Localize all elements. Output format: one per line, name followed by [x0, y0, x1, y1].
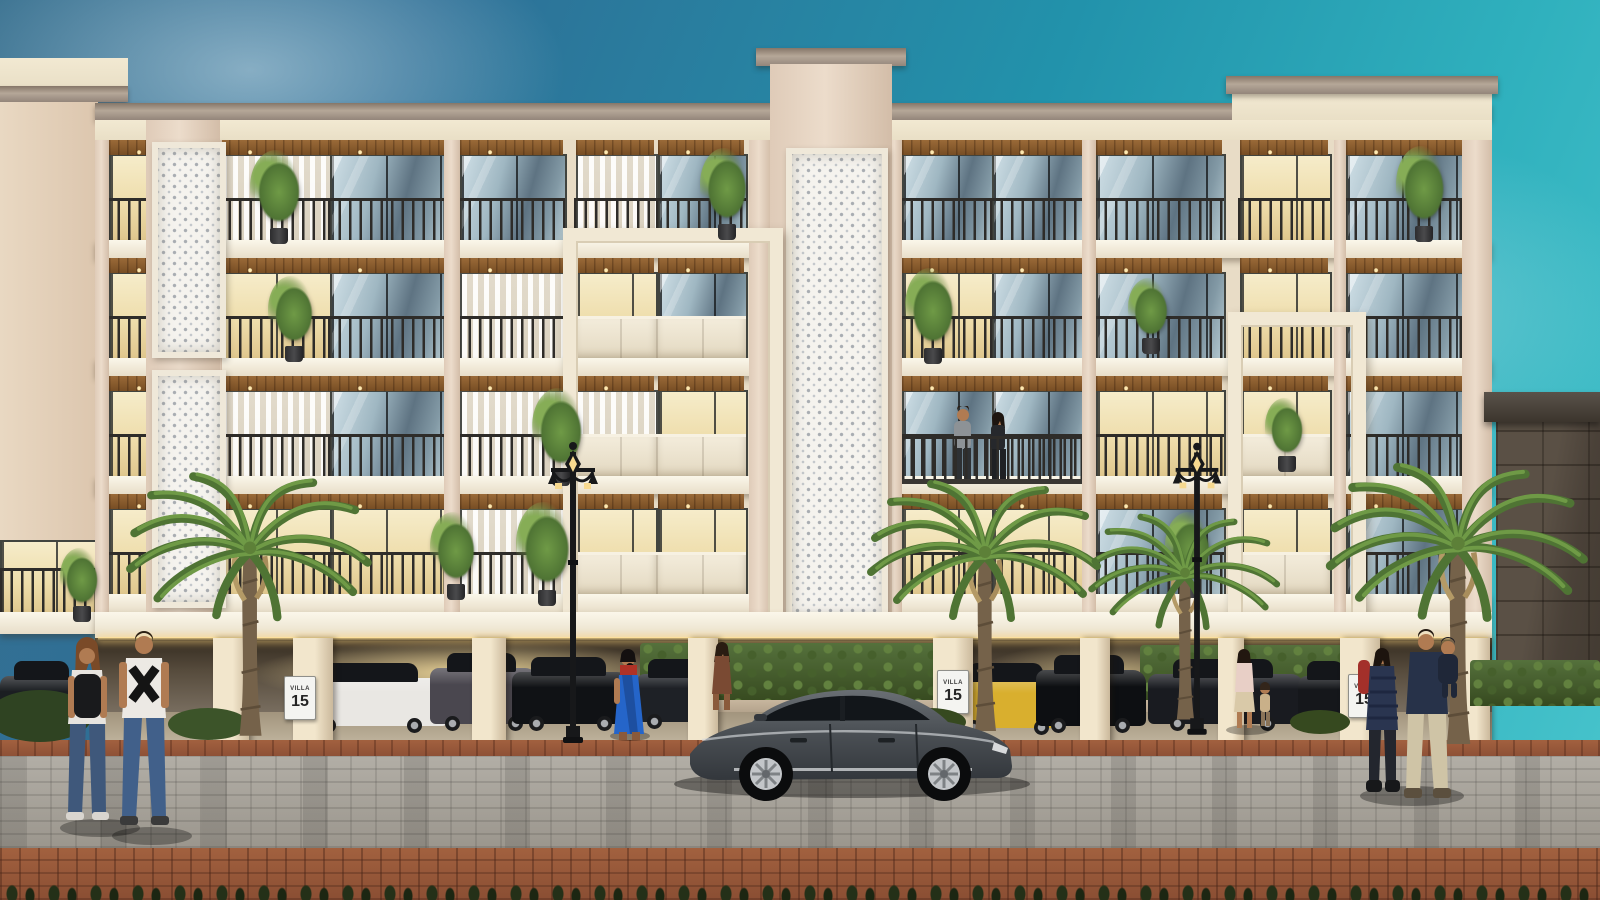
scene-overlay	[0, 0, 1600, 900]
man-x-tshirt	[119, 631, 169, 825]
palm-tree	[871, 482, 1097, 731]
pedestrian-mother-child	[1226, 649, 1270, 735]
pedestrian-couple	[60, 631, 192, 845]
car-wheel	[739, 747, 793, 801]
pedestrian-brown-dress	[712, 642, 732, 710]
architectural-render: VILLA 15 VILLA 15 VILLA 15	[0, 0, 1600, 900]
woman-navy-puffer	[1366, 648, 1400, 792]
shrub	[1290, 710, 1350, 734]
shrub	[168, 708, 248, 740]
pedestrian-sari-woman	[610, 649, 650, 741]
pedestrian-family	[1358, 629, 1464, 806]
woman-with-backpack	[66, 637, 109, 820]
car-wheel	[917, 747, 971, 801]
street-lamp	[548, 442, 598, 743]
